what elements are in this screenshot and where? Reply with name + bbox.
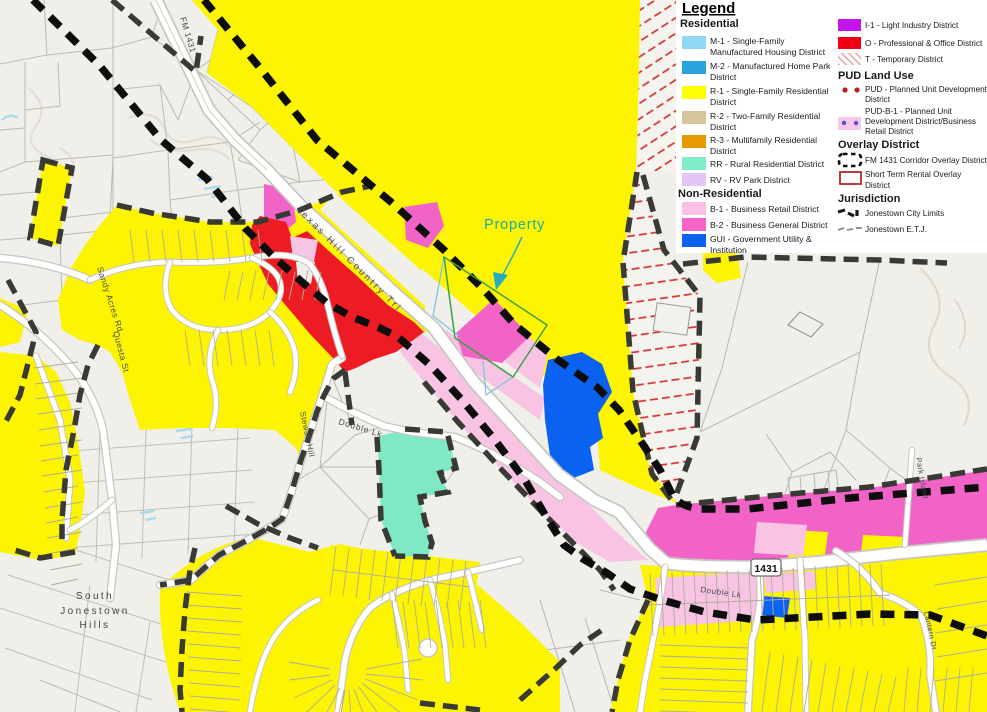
svg-text:O - Professional & Office Dist: O - Professional & Office District [865,39,983,48]
svg-text:Development District/Business: Development District/Business [865,117,976,126]
svg-text:District: District [865,181,891,190]
svg-text:RV - RV Park District: RV - RV Park District [710,175,791,185]
svg-text:Retail District: Retail District [865,127,914,136]
svg-text:Non-Residential: Non-Residential [678,188,762,200]
svg-text:T - Temporary District: T - Temporary District [865,55,944,64]
svg-text:District: District [710,146,737,156]
svg-text:GUI - Government Utility &: GUI - Government Utility & [710,234,812,244]
svg-text:South: South [76,591,114,602]
svg-text:Hills: Hills [80,620,111,631]
svg-text:Jonestown E.T.J.: Jonestown E.T.J. [865,225,927,234]
svg-text:Property: Property [484,217,545,233]
svg-text:Residential: Residential [680,18,739,30]
svg-text:Jurisdiction: Jurisdiction [838,193,901,205]
svg-text:District: District [710,97,737,107]
svg-text:B-1 - Business Retail District: B-1 - Business Retail District [710,204,819,214]
svg-text:RR - Rural Residential Distric: RR - Rural Residential District [710,159,825,169]
svg-text:PUD Land Use: PUD Land Use [838,70,914,82]
svg-text:Jonestown: Jonestown [60,606,129,617]
svg-text:Overlay District: Overlay District [838,139,920,151]
svg-text:Jonestown City Limits: Jonestown City Limits [865,209,944,218]
svg-text:PUD - Planned Unit Development: PUD - Planned Unit Development [865,85,987,94]
svg-text:PUD-B-1 - Planned Unit: PUD-B-1 - Planned Unit [865,107,953,116]
svg-text:District: District [865,95,891,104]
svg-text:R-1 - Single-Family Residentia: R-1 - Single-Family Residential [710,86,829,96]
svg-text:Legend: Legend [682,0,735,17]
svg-text:I-1 - Light Industry District: I-1 - Light Industry District [865,21,959,30]
svg-text:1431: 1431 [754,563,778,575]
svg-text:FM 1431 Corridor Overlay Distr: FM 1431 Corridor Overlay District [865,156,987,165]
svg-text:Short Term Rental Overlay: Short Term Rental Overlay [865,170,962,179]
svg-text:M-1 - Single-Family: M-1 - Single-Family [710,36,785,46]
svg-text:R-2 - Two-Family Residential: R-2 - Two-Family Residential [710,111,820,121]
svg-text:Institution: Institution [710,245,747,255]
svg-text:Manufactured Housing District: Manufactured Housing District [710,47,826,57]
svg-text:B-2 - Business General Distric: B-2 - Business General District [710,220,828,230]
svg-text:R-3 - Multifamily Residential: R-3 - Multifamily Residential [710,135,817,145]
svg-text:District: District [710,72,737,82]
svg-text:District: District [710,122,737,132]
svg-text:M-2 - Manufactured Home Park: M-2 - Manufactured Home Park [710,61,831,71]
